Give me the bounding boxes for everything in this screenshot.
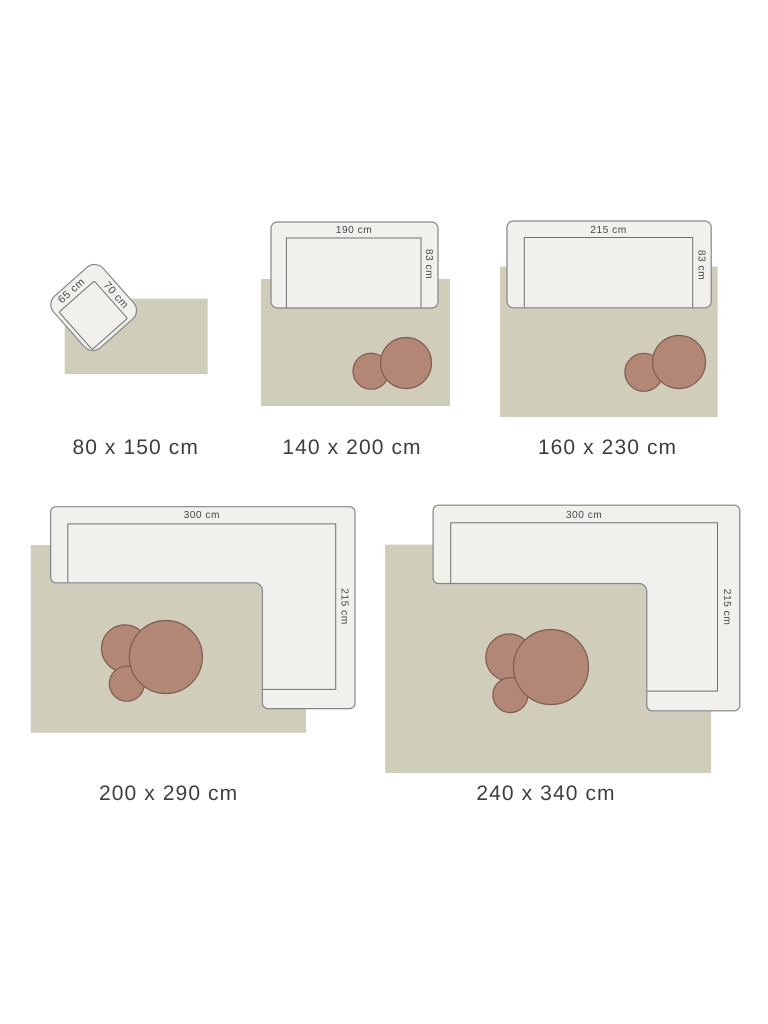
svg-text:200 x 290 cm: 200 x 290 cm — [99, 782, 238, 805]
svg-text:160 x 230 cm: 160 x 230 cm — [538, 436, 677, 459]
svg-text:83 cm: 83 cm — [696, 250, 707, 280]
svg-text:80 x 150 cm: 80 x 150 cm — [72, 436, 199, 459]
svg-text:140 x 200 cm: 140 x 200 cm — [282, 436, 421, 459]
svg-text:215 cm: 215 cm — [590, 225, 626, 236]
svg-text:300 cm: 300 cm — [184, 510, 220, 521]
svg-text:215 cm: 215 cm — [721, 589, 732, 625]
svg-text:300 cm: 300 cm — [566, 510, 602, 521]
svg-text:240 x 340 cm: 240 x 340 cm — [476, 782, 615, 805]
svg-text:190 cm: 190 cm — [336, 225, 372, 236]
svg-text:83 cm: 83 cm — [423, 249, 434, 279]
svg-text:215 cm: 215 cm — [339, 588, 350, 624]
